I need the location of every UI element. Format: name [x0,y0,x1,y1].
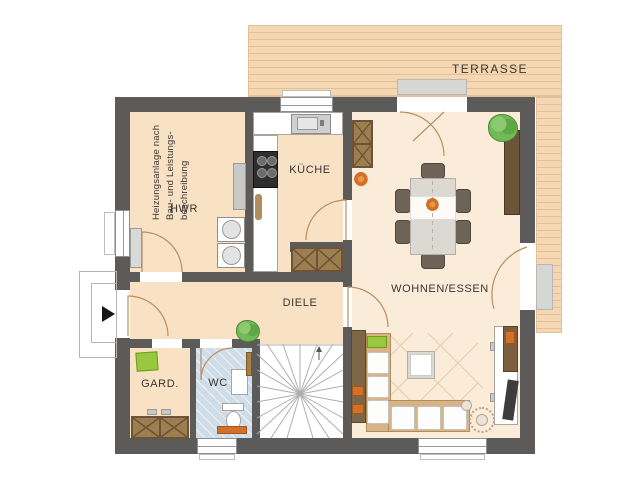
terrace-door-right-swing [492,247,527,309]
floor-plan: TERRASSE [0,0,640,480]
wc-door-swing [201,348,233,380]
entry-door-swing [128,296,168,336]
hwr-door-swing [142,232,182,272]
terrace-door-swing [400,112,444,156]
kitchen-door-swing [306,200,346,240]
diele-living-door-swing [348,287,388,327]
door-swings [0,0,640,480]
